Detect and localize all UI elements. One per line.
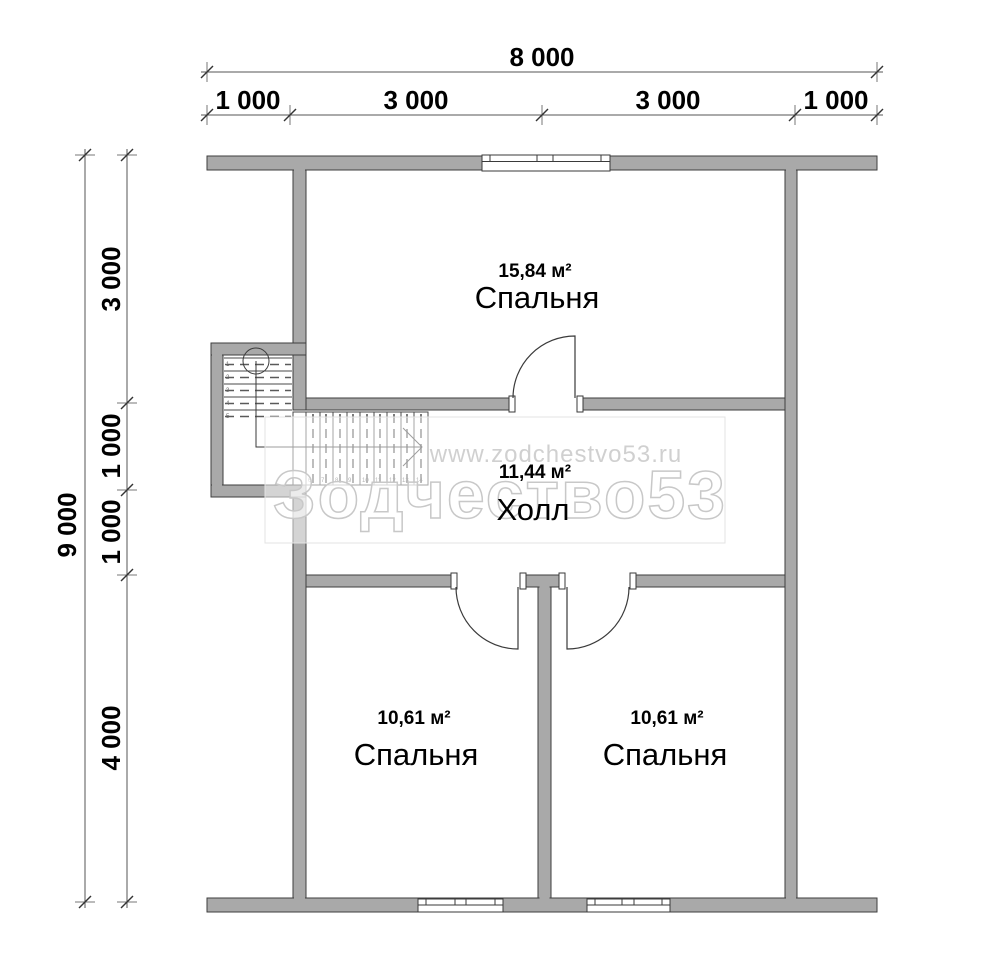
wall-joint-patch — [540, 894, 550, 901]
door-jamb — [451, 573, 457, 589]
floor-plan-drawing: 1 2 3 4 5 6 7 — [0, 0, 1001, 960]
dim-left-seg-3: 1 000 — [96, 499, 126, 564]
dim-top-seg-2: 3 000 — [383, 85, 448, 115]
wall-joint-patch — [212, 352, 222, 358]
bedroom-left-area: 10,61 м² — [377, 708, 450, 729]
window-bottom-right — [587, 899, 670, 912]
wall-joint-patch — [786, 166, 796, 174]
wall-joint-patch — [294, 166, 305, 174]
stair-upper-flight: 1 2 3 4 5 — [224, 358, 292, 420]
door-jamb — [630, 573, 636, 589]
door-jamb — [559, 573, 565, 589]
wall-joint-patch — [212, 482, 222, 488]
dim-left-seg-2: 1 000 — [96, 413, 126, 478]
floor-plan-page: 1 2 3 4 5 6 7 — [0, 0, 1001, 960]
door-bedroom-top — [513, 336, 575, 398]
dim-top-total: 8 000 — [509, 42, 574, 72]
window-bottom-left — [418, 899, 503, 912]
wall-joint-patch — [540, 582, 550, 590]
dim-top-seg-3: 3 000 — [635, 85, 700, 115]
door-jamb — [577, 396, 583, 412]
dimensions-top: 8 000 1 000 3 000 3 000 1 000 — [201, 42, 883, 125]
dim-left-seg-1: 3 000 — [96, 246, 126, 311]
bedroom-right-area: 10,61 м² — [630, 708, 703, 729]
dim-top-seg-4: 1 000 — [803, 85, 868, 115]
wall-bedroom-divider — [538, 587, 551, 898]
door-bedroom-left — [456, 587, 518, 649]
wall-stair-recess-left — [211, 343, 223, 497]
wall-hall-bottom-left — [306, 575, 457, 587]
bedroom-right-name: Спальня — [603, 737, 728, 772]
wall-joint-patch — [289, 345, 299, 354]
wall-left-upper — [293, 170, 306, 410]
wall-hall-top-left — [306, 398, 515, 410]
wall-joint-patch — [294, 894, 305, 902]
door-bedroom-right — [567, 587, 629, 649]
dim-top-seg-1: 1 000 — [215, 85, 280, 115]
wall-hall-top-right — [577, 398, 785, 410]
hall-name: Холл — [496, 492, 569, 527]
bedroom-left-name: Спальня — [354, 737, 479, 772]
wall-right — [785, 170, 797, 898]
bedroom-top-name: Спальня — [475, 280, 600, 315]
dim-left-seg-4: 4 000 — [96, 705, 126, 770]
dim-left-total: 9 000 — [52, 492, 82, 557]
wall-joint-patch — [786, 894, 796, 902]
dimensions-left: 9 000 3 000 1 000 1 000 4 000 — [52, 149, 137, 908]
wall-hall-bottom-right — [630, 575, 785, 587]
bedroom-top-area: 15,84 м² — [498, 261, 571, 282]
door-jamb — [509, 396, 515, 412]
hall-area: 11,44 м² — [499, 462, 571, 483]
door-jamb — [520, 573, 526, 589]
wall-left-lower — [293, 497, 306, 898]
window-top — [482, 155, 610, 171]
